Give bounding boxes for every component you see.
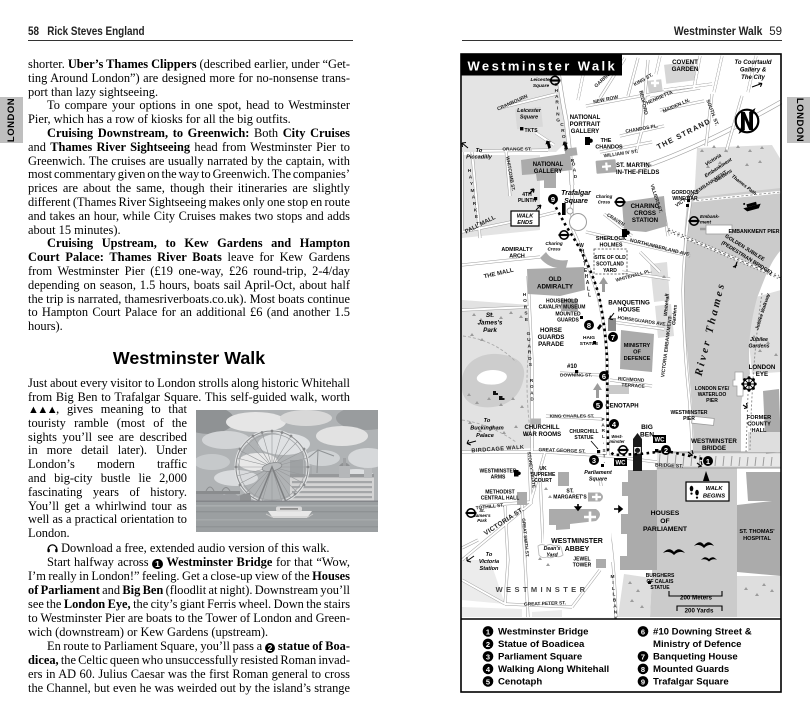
- svg-text:Square: Square: [564, 198, 588, 205]
- svg-text:ARMS: ARMS: [491, 475, 506, 481]
- svg-text:THE: THE: [601, 138, 612, 144]
- svg-text:1: 1: [706, 457, 710, 466]
- svg-text:H: H: [468, 168, 472, 174]
- svg-text:TOWER: TOWER: [573, 563, 592, 569]
- svg-text:9: 9: [551, 195, 555, 204]
- svg-text:D: D: [528, 356, 532, 362]
- svg-text:W: W: [579, 243, 584, 249]
- svg-text:GALLERY: GALLERY: [571, 129, 599, 135]
- svg-text:HOUSES: HOUSES: [651, 510, 680, 517]
- svg-text:HORSE: HORSE: [540, 327, 562, 334]
- svg-text:MINISTRY: MINISTRY: [624, 343, 651, 349]
- svg-text:GARDEN: GARDEN: [672, 66, 699, 73]
- svg-text:U: U: [527, 337, 531, 343]
- svg-text:To: To: [486, 552, 493, 558]
- svg-text:Walking Along Whitehall: Walking Along Whitehall: [498, 664, 609, 675]
- svg-text:STATUE: STATUE: [650, 585, 670, 591]
- svg-text:NATIONAL: NATIONAL: [533, 162, 564, 168]
- svg-text:PIER: PIER: [683, 416, 695, 422]
- svg-text:L: L: [613, 592, 616, 598]
- svg-text:BANQUETING: BANQUETING: [608, 300, 650, 307]
- svg-text:Trafalgar Square: Trafalgar Square: [653, 677, 729, 688]
- svg-text:8: 8: [641, 665, 645, 674]
- svg-text:ST. MARTIN-: ST. MARTIN-: [616, 163, 652, 169]
- svg-text:A: A: [472, 194, 476, 200]
- svg-text:HOLMES: HOLMES: [599, 243, 622, 249]
- svg-text:O: O: [530, 384, 534, 390]
- svg-text:SCOTLAND: SCOTLAND: [596, 262, 624, 268]
- svg-text:6: 6: [602, 372, 606, 381]
- svg-text:T: T: [583, 262, 586, 268]
- svg-text:MARGARET'S: MARGARET'S: [553, 495, 587, 501]
- svg-text:Parliament Square: Parliament Square: [498, 652, 582, 663]
- svg-text:.: .: [603, 439, 604, 444]
- svg-text:BEN: BEN: [640, 432, 654, 439]
- svg-text:Leicester: Leicester: [530, 77, 552, 83]
- svg-text:STATION: STATION: [632, 217, 659, 224]
- svg-text:HAIG: HAIG: [583, 335, 595, 341]
- svg-text:DOWNING ST.: DOWNING ST.: [560, 373, 592, 379]
- svg-text:A: A: [613, 604, 617, 610]
- svg-text:KING CHARLES ST.: KING CHARLES ST.: [550, 414, 595, 420]
- svg-text:Banqueting House: Banqueting House: [653, 652, 738, 663]
- svg-text:HOSPITAL: HOSPITAL: [743, 536, 771, 542]
- svg-text:A: A: [469, 175, 473, 181]
- svg-text:5: 5: [596, 401, 600, 410]
- svg-text:8: 8: [587, 321, 591, 330]
- svg-text:6: 6: [641, 627, 645, 636]
- svg-text:R: R: [473, 201, 477, 207]
- svg-text:Piccadilly: Piccadilly: [466, 155, 493, 161]
- svg-text:K: K: [474, 208, 478, 214]
- svg-text:ENDS: ENDS: [517, 220, 533, 226]
- svg-text:Square: Square: [520, 115, 538, 121]
- svg-text:A: A: [586, 280, 590, 286]
- svg-text:L: L: [588, 293, 591, 299]
- svg-text:STATUE: STATUE: [580, 341, 599, 347]
- svg-text:R: R: [530, 378, 534, 384]
- svg-text:R: R: [555, 100, 559, 106]
- svg-text:BIG: BIG: [641, 424, 653, 431]
- svg-text:WESTMINSTER: WESTMINSTER: [496, 585, 589, 594]
- svg-text:Park: Park: [483, 327, 497, 334]
- svg-text:PARADE: PARADE: [538, 341, 564, 348]
- svg-text:PIER: PIER: [706, 398, 718, 404]
- svg-text:NATIONAL: NATIONAL: [570, 115, 601, 121]
- svg-text:Leicester: Leicester: [517, 108, 542, 114]
- svg-text:Statue of Boadicea: Statue of Boadicea: [498, 639, 585, 650]
- svg-text:Gardens: Gardens: [748, 344, 769, 350]
- svg-text:Cross: Cross: [547, 247, 560, 252]
- svg-text:9: 9: [641, 677, 645, 686]
- svg-text:7: 7: [641, 652, 645, 661]
- svg-text:2: 2: [486, 640, 490, 649]
- svg-text:James's: James's: [478, 320, 503, 327]
- svg-text:BRIDGE ST.: BRIDGE ST.: [655, 463, 684, 470]
- svg-text:Trafalgar: Trafalgar: [561, 190, 592, 197]
- svg-text:A: A: [573, 168, 577, 174]
- svg-text:Westminster Walk: Westminster Walk: [468, 59, 618, 74]
- svg-text:O: O: [572, 161, 576, 167]
- svg-text:C: C: [554, 82, 558, 88]
- svg-text:SITE OF OLD: SITE OF OLD: [594, 255, 626, 261]
- svg-text:TKTS: TKTS: [524, 128, 538, 134]
- svg-text:2: 2: [664, 446, 668, 455]
- svg-text:#10 Downing Street &: #10 Downing Street &: [653, 627, 752, 638]
- svg-text:ADMIRALTY: ADMIRALTY: [501, 247, 533, 253]
- svg-text:Embank-: Embank-: [700, 214, 720, 219]
- svg-text:St.: St.: [486, 312, 494, 319]
- svg-text:Park: Park: [477, 518, 487, 523]
- svg-text:PORTRAIT: PORTRAIT: [570, 122, 601, 128]
- svg-text:A: A: [530, 390, 534, 396]
- svg-text:R: R: [524, 304, 528, 310]
- svg-text:Buckingham: Buckingham: [470, 426, 504, 432]
- svg-text:ADMIRALTY: ADMIRALTY: [537, 284, 574, 291]
- svg-text:200 Meters: 200 Meters: [680, 595, 713, 602]
- svg-text:WAR ROOMS: WAR ROOMS: [523, 432, 561, 438]
- svg-text:The City: The City: [741, 75, 765, 81]
- svg-text:O: O: [523, 298, 527, 304]
- svg-text:ORANGE ST.: ORANGE ST.: [502, 147, 531, 153]
- svg-text:WESTMINSTER: WESTMINSTER: [691, 438, 737, 445]
- svg-text:1: 1: [486, 627, 490, 636]
- svg-text:OF: OF: [633, 350, 641, 356]
- svg-text:P: P: [601, 417, 604, 422]
- svg-text:Charing: Charing: [545, 241, 563, 246]
- svg-text:Cross: Cross: [598, 200, 611, 205]
- svg-text:CAVALRY MUSEUM: CAVALRY MUSEUM: [539, 305, 586, 311]
- svg-text:WALK: WALK: [517, 214, 534, 220]
- svg-text:GALLERY: GALLERY: [534, 169, 562, 175]
- svg-text:L: L: [587, 286, 590, 292]
- svg-text:A: A: [555, 94, 559, 100]
- svg-text:BEGINS: BEGINS: [703, 494, 725, 500]
- svg-text:WESTMINSTER: WESTMINSTER: [551, 538, 603, 545]
- svg-text:WALK: WALK: [705, 486, 723, 492]
- svg-text:M: M: [471, 188, 475, 194]
- svg-text:To: To: [484, 418, 491, 424]
- svg-text:T: T: [603, 454, 606, 459]
- svg-text:PARLIAMENT: PARLIAMENT: [643, 526, 688, 533]
- svg-text:ABBEY: ABBEY: [565, 546, 590, 553]
- svg-text:L: L: [602, 434, 605, 439]
- svg-text:N: N: [614, 609, 618, 615]
- svg-text:Yard: Yard: [546, 553, 558, 559]
- svg-text:5: 5: [486, 677, 490, 686]
- svg-text:Ministry of Defence: Ministry of Defence: [653, 639, 742, 650]
- svg-text:SHERLOCK: SHERLOCK: [596, 236, 626, 242]
- svg-text:WC: WC: [616, 461, 627, 467]
- svg-text:STATUE: STATUE: [574, 435, 594, 441]
- svg-text:Station: Station: [480, 566, 500, 572]
- svg-text:Victoria: Victoria: [479, 559, 499, 565]
- svg-text:R: R: [561, 128, 565, 134]
- svg-text:Square: Square: [533, 83, 550, 89]
- svg-text:To Courtauld: To Courtauld: [734, 60, 771, 66]
- svg-text:EMBANKMENT PIER: EMBANKMENT PIER: [728, 229, 779, 235]
- svg-text:COVENT: COVENT: [672, 59, 698, 66]
- svg-text:Cenotaph: Cenotaph: [498, 677, 542, 688]
- svg-text:Jubilee: Jubilee: [750, 337, 768, 343]
- svg-text:CROSS: CROSS: [634, 210, 656, 217]
- svg-text:GUARDS: GUARDS: [557, 318, 579, 324]
- svg-text:N: N: [556, 112, 560, 118]
- svg-text:G: G: [527, 331, 531, 337]
- svg-text:Westminster Bridge: Westminster Bridge: [498, 627, 588, 638]
- svg-text:OLD: OLD: [548, 276, 562, 283]
- svg-text:H: H: [581, 249, 585, 255]
- svg-text:ARCH: ARCH: [509, 254, 525, 260]
- svg-text:HALL: HALL: [752, 428, 767, 434]
- svg-text:Charing: Charing: [596, 194, 613, 199]
- svg-text:3: 3: [486, 652, 490, 661]
- svg-text:M: M: [611, 574, 615, 580]
- svg-text:L: L: [612, 586, 615, 592]
- svg-text:#10: #10: [567, 364, 578, 370]
- svg-text:minster: minster: [609, 439, 624, 444]
- svg-text:CHANDOS: CHANDOS: [595, 145, 623, 151]
- svg-text:HOUSE: HOUSE: [618, 307, 640, 314]
- svg-text:Gallery &: Gallery &: [740, 68, 766, 74]
- svg-text:Square: Square: [589, 477, 607, 483]
- svg-text:DEFENCE: DEFENCE: [624, 356, 651, 362]
- svg-text:ment: ment: [700, 220, 711, 225]
- svg-text:Mounted Guards: Mounted Guards: [653, 664, 729, 675]
- svg-text:3: 3: [592, 456, 596, 465]
- svg-text:EYE: EYE: [756, 371, 768, 378]
- svg-text:D: D: [530, 397, 534, 403]
- svg-text:GUARDS: GUARDS: [538, 334, 565, 341]
- svg-text:To: To: [476, 148, 483, 154]
- svg-text:200 Yards: 200 Yards: [685, 608, 714, 615]
- svg-text:C: C: [560, 122, 564, 128]
- svg-text:A: A: [527, 343, 531, 349]
- svg-text:FORMER: FORMER: [747, 415, 771, 421]
- svg-text:IN-THE-FIELDS: IN-THE-FIELDS: [616, 170, 659, 176]
- svg-text:H: H: [555, 88, 559, 94]
- svg-text:CENOTAPH: CENOTAPH: [605, 404, 638, 410]
- svg-text:YARD: YARD: [603, 268, 617, 274]
- svg-text:D: D: [574, 174, 578, 180]
- svg-text:7: 7: [611, 333, 615, 342]
- svg-text:H: H: [585, 274, 589, 280]
- svg-text:H: H: [523, 292, 527, 298]
- svg-text:PLINTH: PLINTH: [518, 198, 536, 204]
- svg-text:CHURCHILL: CHURCHILL: [525, 425, 560, 431]
- svg-text:Dean's: Dean's: [544, 546, 561, 552]
- svg-text:COUNTY: COUNTY: [747, 422, 771, 428]
- svg-text:O: O: [562, 134, 566, 140]
- svg-text:WC: WC: [655, 438, 666, 444]
- svg-text:B: B: [613, 598, 617, 604]
- svg-text:Palace: Palace: [476, 433, 494, 439]
- svg-text:BRIDGE: BRIDGE: [702, 445, 726, 452]
- svg-text:Parliament: Parliament: [584, 470, 612, 476]
- svg-text:R: R: [528, 350, 532, 356]
- svg-text:OF: OF: [660, 518, 669, 525]
- svg-text:CENTRAL HALL: CENTRAL HALL: [481, 496, 520, 502]
- svg-text:ST. THOMAS': ST. THOMAS': [739, 529, 775, 535]
- svg-text:S: S: [602, 448, 605, 453]
- svg-text:LONDON: LONDON: [749, 364, 776, 371]
- svg-text:.: .: [604, 459, 605, 464]
